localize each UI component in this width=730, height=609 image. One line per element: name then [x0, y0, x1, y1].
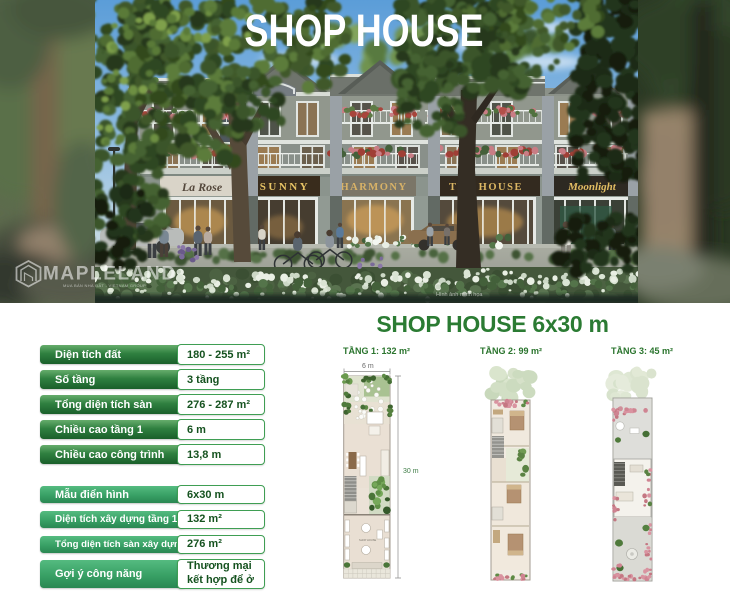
svg-text:La Rose: La Rose [181, 180, 223, 194]
svg-text:HARMONY: HARMONY [340, 182, 407, 193]
svg-text:Moonlight: Moonlight [567, 181, 617, 193]
svg-text:SHOP HOUSE: SHOP HOUSE [359, 538, 377, 542]
svg-text:SUNNY: SUNNY [260, 181, 310, 193]
svg-text:SHOP HOUSE: SHOP HOUSE [245, 5, 484, 56]
svg-text:MUA BÁN NHÀ ĐẤT - VIETNAM GROU: MUA BÁN NHÀ ĐẤT - VIETNAM GROUP [63, 283, 146, 288]
svg-text:30 m: 30 m [403, 468, 419, 475]
svg-text:MAPLELAND: MAPLELAND [43, 264, 177, 285]
svg-text:6 m: 6 m [362, 363, 374, 370]
svg-text:Hình ảnh minh họa: Hình ảnh minh họa [436, 292, 483, 298]
